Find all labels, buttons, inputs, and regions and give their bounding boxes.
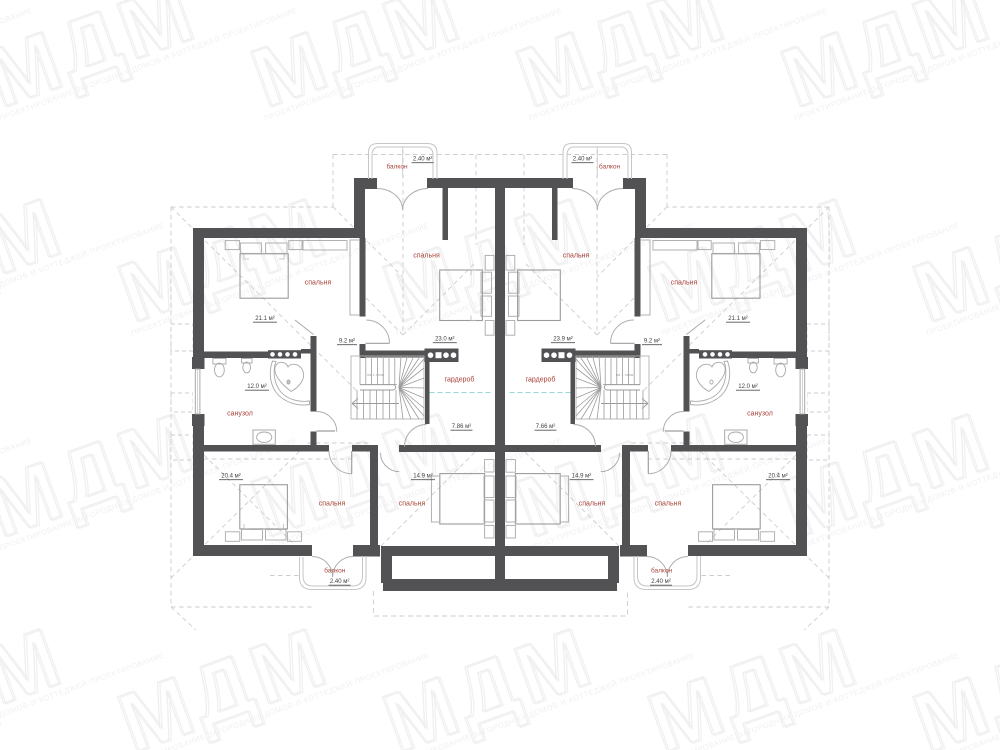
svg-text:балкон: балкон <box>599 163 621 171</box>
svg-text:спальня: спальня <box>319 501 346 508</box>
svg-text:20.4 м²: 20.4 м² <box>768 474 787 480</box>
svg-text:2.40 м²: 2.40 м² <box>573 157 592 163</box>
svg-text:спальня: спальня <box>413 253 440 260</box>
svg-text:балкон: балкон <box>386 163 408 171</box>
svg-text:на 1 этаж: на 1 этаж <box>367 372 385 377</box>
svg-text:спальня: спальня <box>671 280 698 287</box>
svg-text:спальня: спальня <box>579 501 606 508</box>
svg-text:гардероб: гардероб <box>526 376 556 384</box>
svg-text:2.40 м²: 2.40 м² <box>651 579 670 585</box>
svg-text:спальня: спальня <box>655 501 682 508</box>
svg-text:санузол: санузол <box>747 411 773 418</box>
svg-text:на 1 этаж: на 1 этаж <box>616 372 634 377</box>
svg-text:12.0 м²: 12.0 м² <box>738 384 757 390</box>
svg-text:спальня: спальня <box>305 280 332 287</box>
svg-text:21.1 м²: 21.1 м² <box>255 316 274 322</box>
svg-text:2.40 м²: 2.40 м² <box>330 579 349 585</box>
svg-text:9.2 м²: 9.2 м² <box>644 339 660 345</box>
svg-text:спальня: спальня <box>563 253 590 260</box>
svg-text:12.0 м²: 12.0 м² <box>247 384 266 390</box>
svg-text:гардероб: гардероб <box>445 376 475 384</box>
svg-text:9.2 м²: 9.2 м² <box>339 339 355 345</box>
svg-text:14.9 м²: 14.9 м² <box>413 474 432 480</box>
svg-text:балкон: балкон <box>324 567 346 575</box>
svg-text:21.1 м²: 21.1 м² <box>728 316 747 322</box>
svg-text:2.40 м²: 2.40 м² <box>413 157 432 163</box>
svg-text:спальня: спальня <box>399 501 426 508</box>
svg-text:санузол: санузол <box>227 411 253 418</box>
svg-text:14.9 м²: 14.9 м² <box>572 474 591 480</box>
svg-text:7.66 м²: 7.66 м² <box>536 424 555 430</box>
svg-text:23.0 м²: 23.0 м² <box>435 337 454 343</box>
svg-text:23.9 м²: 23.9 м² <box>553 337 572 343</box>
svg-text:7.86 м²: 7.86 м² <box>452 424 471 430</box>
svg-text:балкон: балкон <box>651 567 673 575</box>
svg-text:20.4 м²: 20.4 м² <box>221 474 240 480</box>
